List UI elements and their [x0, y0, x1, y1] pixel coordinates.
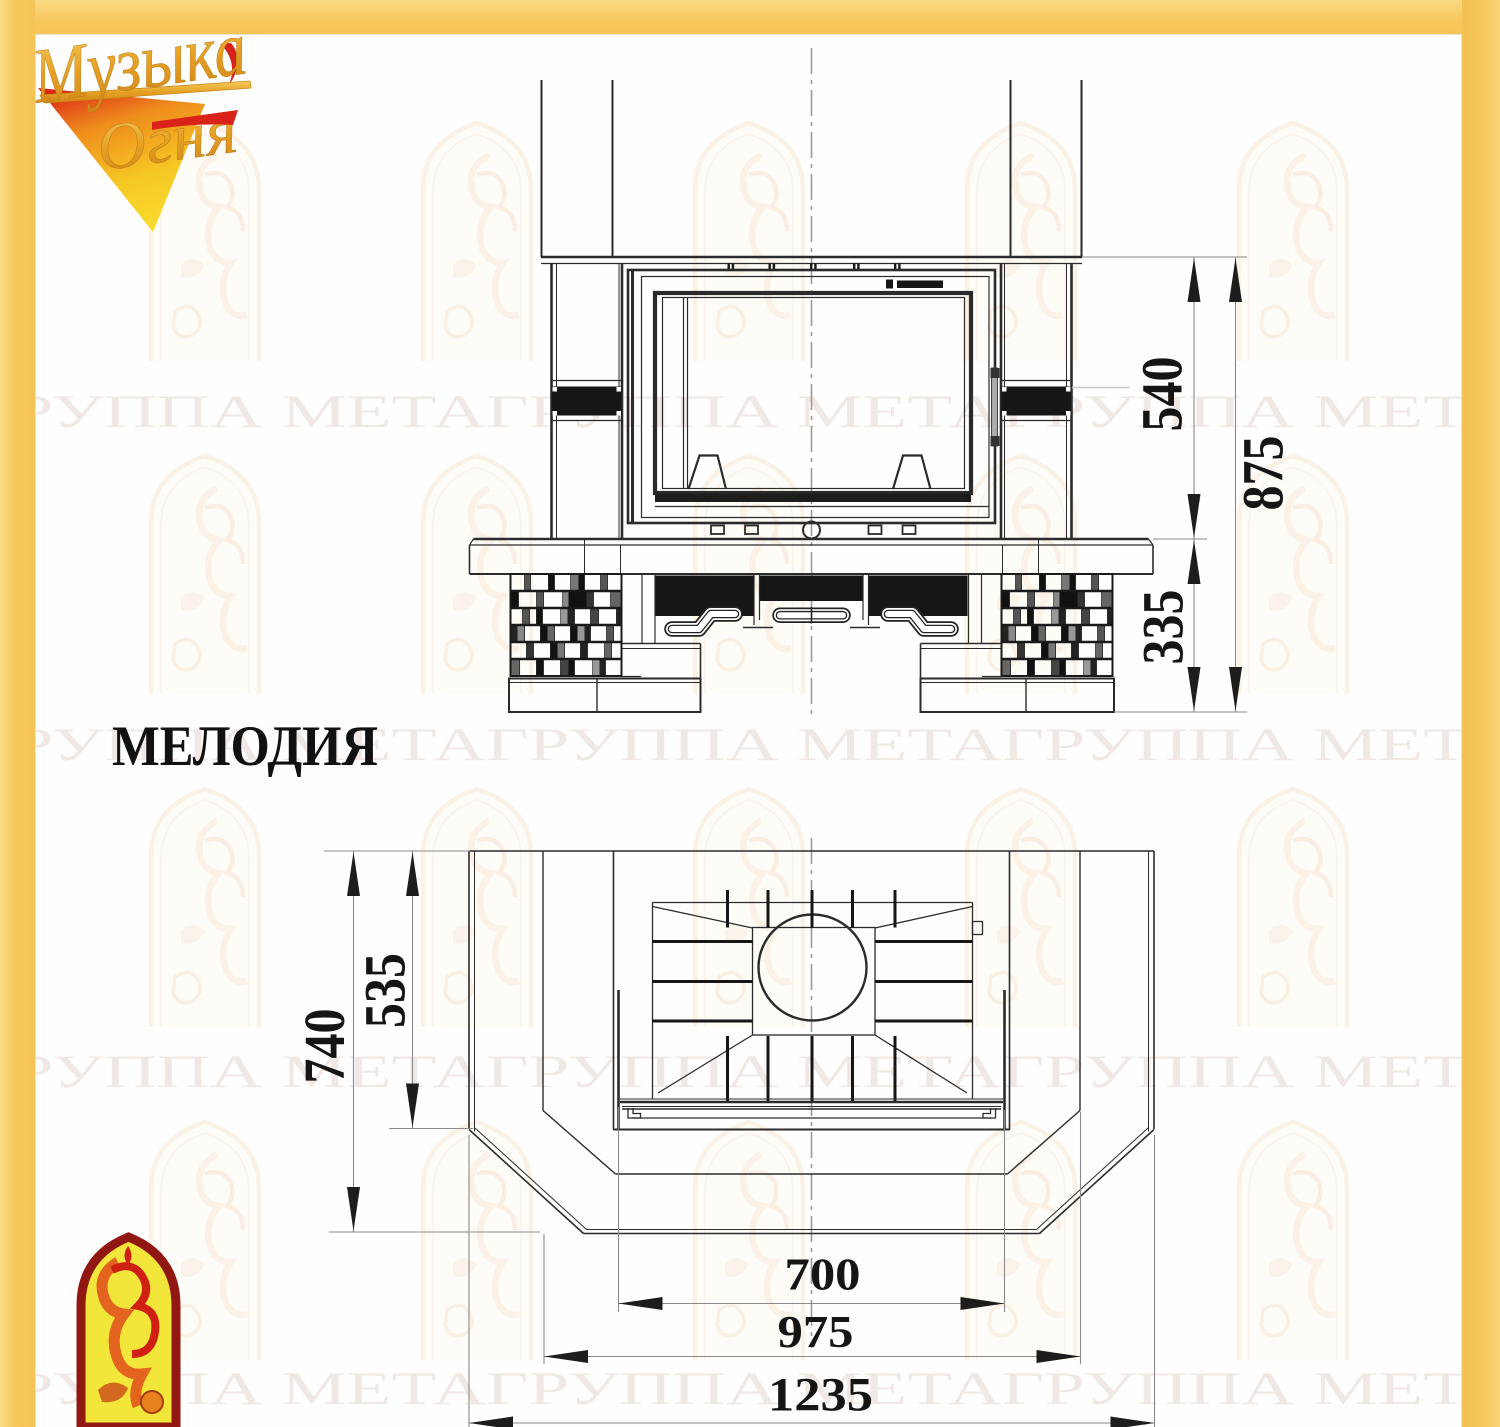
- svg-text:740: 740: [292, 1009, 357, 1084]
- svg-text:ГРУППА МЕТАГРУППА МЕТАГРУППА М: ГРУППА МЕТАГРУППА МЕТАГРУППА МЕТАГ: [0, 386, 1500, 438]
- svg-text:700: 700: [785, 1249, 861, 1300]
- svg-text:875: 875: [1231, 436, 1296, 511]
- svg-text:1235: 1235: [768, 1369, 873, 1422]
- svg-text:535: 535: [353, 953, 418, 1028]
- svg-text:МЕЛОДИЯ: МЕЛОДИЯ: [112, 715, 378, 778]
- svg-text:ГРУППА МЕТАГРУППА МЕТАГРУППА М: ГРУППА МЕТАГРУППА МЕТАГРУППА МЕТАГ: [0, 1363, 1500, 1415]
- svg-text:ГРУППА МЕТАГРУППА МЕТАГРУППА М: ГРУППА МЕТАГРУППА МЕТАГРУППА МЕТАГ: [0, 1046, 1500, 1098]
- svg-text:540: 540: [1130, 357, 1195, 432]
- svg-text:975: 975: [778, 1306, 854, 1357]
- svg-text:335: 335: [1131, 590, 1196, 665]
